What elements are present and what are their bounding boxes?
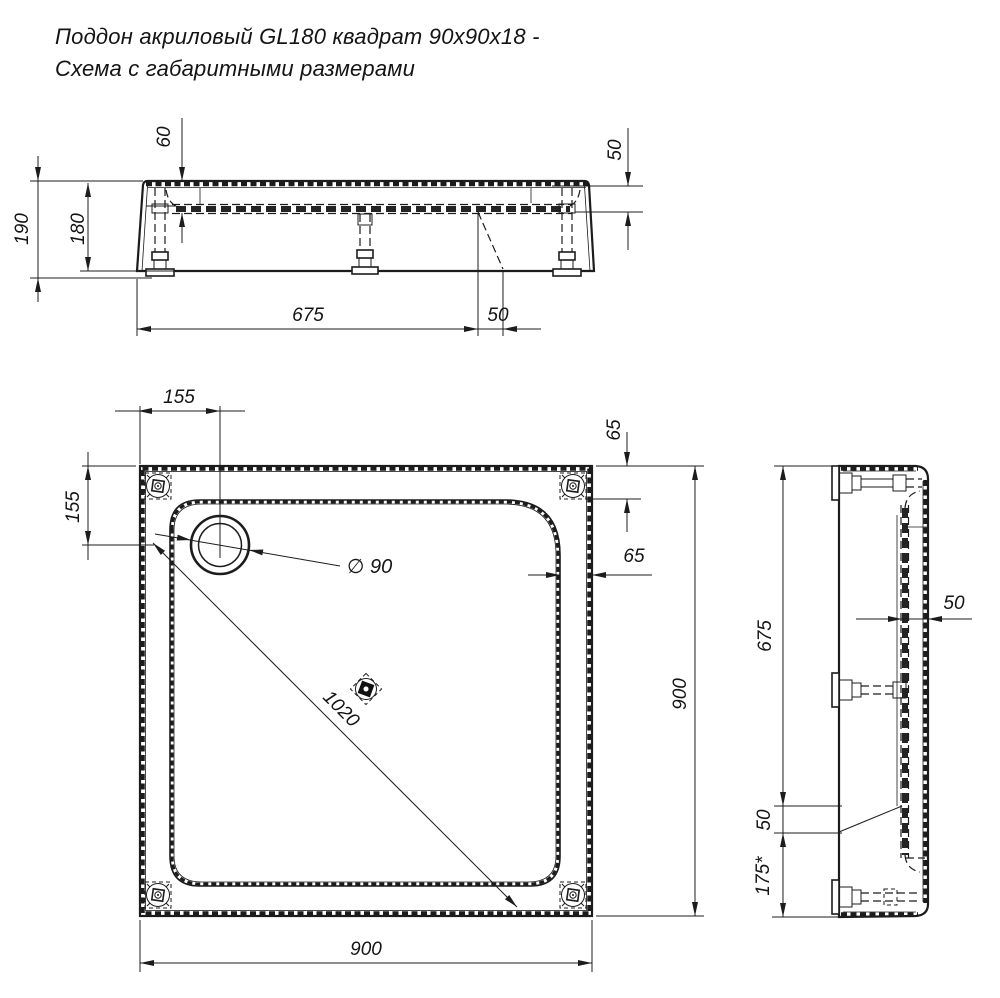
dim-label-60: 60 — [154, 126, 175, 148]
dim-label-190: 190 — [12, 213, 33, 245]
dim-plan-900-right: 900 — [596, 466, 704, 916]
dim-label-900-bottom: 900 — [350, 939, 382, 960]
dim-label-section-675: 675 — [755, 620, 776, 652]
drawing-title-line2: Схема с габаритными размерами — [55, 56, 415, 81]
dim-label-section-50-wall: 50 — [943, 593, 965, 614]
section-view: 675 50 175* 50 — [753, 466, 972, 917]
drawing-title-line1: Поддон акриловый GL180 квадрат 90x90x18 … — [55, 24, 540, 49]
drawing-canvas: Поддон акриловый GL180 квадрат 90x90x18 … — [0, 0, 1000, 998]
elevation-view: 60 50 190 180 — [12, 118, 643, 336]
dim-label-65-top: 65 — [604, 419, 625, 441]
dim-label-155-left: 155 — [63, 491, 84, 523]
dim-section-vertical-stack: 675 50 175* — [753, 466, 842, 917]
dim-label-section-50-slope: 50 — [754, 809, 775, 831]
plan-view: 155 155 65 65 — [63, 387, 704, 972]
dim-label-50-drain: 50 — [487, 305, 509, 326]
dim-label-drain-diameter: ∅ 90 — [347, 556, 392, 578]
dim-plan-65-top: 65 — [586, 419, 641, 532]
dim-label-675: 675 — [292, 305, 324, 326]
dim-label-155-top: 155 — [163, 387, 195, 408]
dim-label-900-right: 900 — [670, 678, 691, 710]
dim-label-section-175: 175* — [753, 856, 774, 896]
dim-label-50-depth: 50 — [605, 139, 626, 161]
dim-label-65-right: 65 — [623, 546, 645, 567]
dim-label-180: 180 — [68, 213, 89, 245]
title-block: Поддон акриловый GL180 квадрат 90x90x18 … — [55, 24, 540, 81]
dim-plan-900-bottom: 900 — [140, 920, 592, 972]
